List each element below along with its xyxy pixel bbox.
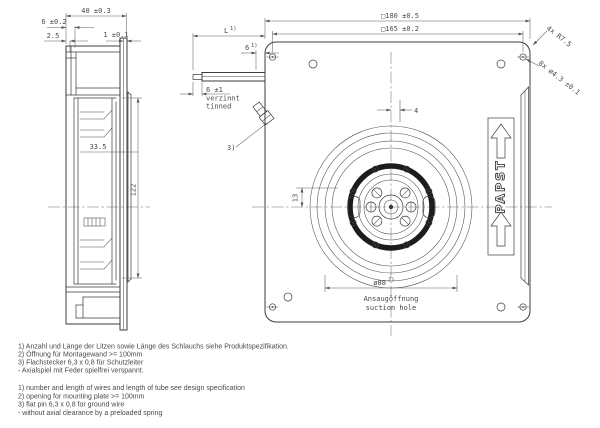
note-de-3: 3) Flachstecker 6,3 x 0,8 für Schutzleit… — [18, 360, 144, 367]
dim-housing-width: 40 ±0.3 — [81, 7, 111, 15]
wire-dimensions: L 1) 6 1) 6 ±1 verzinnt tinned — [180, 26, 279, 111]
mounting-plate — [265, 42, 530, 322]
label-ansaugoeffnung: Ansaugöffnung — [364, 295, 419, 303]
note-en-2: 2) opening for mounting plate >= 100mm — [18, 393, 145, 400]
note-de-1: 1) Anzahl und Länge der Litzen sowie Län… — [18, 344, 289, 351]
tinned-wire-end — [193, 75, 202, 80]
dim-corner-radius: 4x R7.5 — [545, 24, 573, 48]
impeller-blades — [80, 110, 112, 269]
note-en-3: 3) flat pin 6,3 x 0,8 for ground wire — [18, 402, 124, 409]
dim-tinned-length: 6 ±1 — [206, 86, 223, 94]
corner-holes — [267, 54, 530, 310]
note-en-4: - without axial clearance by a preloaded… — [18, 410, 162, 417]
dim-outer-square: □180 ±0.5 — [381, 12, 419, 20]
dim-mount-square: □165 ±0.2 — [381, 25, 419, 33]
front-view: PAPST □180 ±0.5 □165 ±0.2 4x R7.5 8x ø4.… — [265, 12, 582, 322]
dim-center-offset: 4 — [414, 107, 418, 115]
fan-technical-drawing: 40 ±0.3 6 ±0.2 2.5 1 ±0.1 33.5 122 — [0, 0, 600, 428]
dim-flange-thickness: 1 ±0.1 — [103, 31, 128, 39]
airflow-arrow-up-icon — [491, 124, 511, 158]
drawing-sheet: 40 ±0.3 6 ±0.2 2.5 1 ±0.1 33.5 122 — [0, 0, 600, 428]
label-verzinnt: verzinnt — [206, 95, 240, 103]
lead-wire: L 1) 6 1) 6 ±1 verzinnt tinned 3) — [180, 26, 279, 152]
dim-wire-length: L — [224, 27, 228, 35]
corner-hole — [517, 304, 529, 310]
corner-hole — [267, 304, 279, 310]
dim-pin-length-note: 1) — [251, 43, 258, 49]
side-impeller — [74, 98, 116, 284]
ground-flat-pin: 3) — [227, 101, 274, 152]
note-de-2: 2) Öffnung für Montagewand >= 100mm — [18, 351, 143, 359]
side-base — [66, 287, 120, 318]
dim-hub-offset: 13 — [292, 194, 300, 202]
dim-blade-depth: 33.5 — [90, 143, 107, 151]
airflow-arrow-up-icon — [491, 212, 511, 246]
dim-housing-height: 122 — [130, 184, 138, 197]
side-view: 40 ±0.3 6 ±0.2 2.5 1 ±0.1 33.5 122 — [41, 7, 142, 330]
front-dimensions: □180 ±0.5 □165 ±0.2 4x R7.5 8x ø4.3 ±0.1… — [265, 12, 582, 312]
dim-suction-note-ref: 2) — [388, 277, 395, 283]
front-flange-edge — [521, 87, 529, 285]
dim-wire-length-note: 1) — [230, 26, 237, 32]
corner-hole — [267, 54, 279, 60]
dim-pin-length: 6 — [245, 44, 249, 52]
papst-logo-text: PAPST — [493, 159, 508, 213]
shaft-center — [389, 205, 393, 209]
footnotes-english: 1) number and length of wires and length… — [18, 385, 245, 417]
pin-footnote-ref: 3) — [227, 144, 235, 152]
label-suction-hole: suction hole — [366, 304, 417, 312]
note-de-4: - Axialspiel mit Feder spielfrei verspan… — [18, 368, 144, 375]
corner-hole — [517, 54, 529, 60]
dim-mount-holes: 8x ø4.3 ±0.1 — [537, 59, 582, 96]
brand-band: PAPST — [488, 118, 514, 255]
label-tinned: tinned — [206, 103, 231, 111]
side-top-cap — [66, 46, 120, 95]
dim-lip: 2.5 — [47, 32, 60, 40]
dim-inlet-step: 6 ±0.2 — [41, 18, 66, 26]
note-en-1: 1) number and length of wires and length… — [18, 385, 245, 392]
footnotes-german: 1) Anzahl und Länge der Litzen sowie Län… — [18, 344, 289, 375]
rivet-heads — [284, 60, 505, 311]
dim-suction-diameter: ø88 — [373, 279, 386, 287]
motor-hub-section — [84, 218, 105, 226]
